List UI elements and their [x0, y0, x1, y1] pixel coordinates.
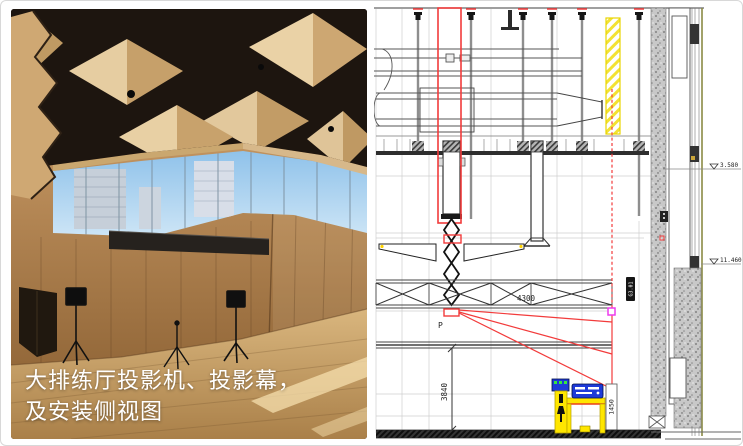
scissor-lift: [444, 219, 459, 305]
caption-line-2: 及安装侧视图: [25, 396, 355, 427]
slide-canvas: 大排练厅投影机、投影幕， 及安装侧视图: [0, 0, 743, 446]
highlight-strip: [606, 18, 620, 134]
dimension-3840: 3840: [440, 344, 456, 434]
steel-beam-section: [501, 10, 519, 30]
photo-caption: 大排练厅投影机、投影幕， 及安装侧视图: [25, 365, 355, 427]
concrete-wall-block: [674, 268, 701, 428]
cad-side-view: 4300 P 3840: [374, 6, 742, 442]
svg-text:11.460: 11.460: [720, 257, 742, 264]
rehearsal-hall-photo: 大排练厅投影机、投影幕， 及安装侧视图: [11, 9, 367, 439]
ceiling-fixture: [328, 126, 334, 132]
floor-slab: [376, 430, 661, 438]
roof-truss: [376, 280, 612, 348]
svg-text:G3.01: G3.01: [629, 281, 635, 296]
equipment-case: [19, 287, 57, 357]
control-unit: [552, 379, 569, 391]
device-on-table: [572, 384, 603, 398]
projector: [444, 309, 459, 316]
cad-illustration: 4300 P 3840: [374, 6, 742, 442]
svg-text:3840: 3840: [440, 382, 449, 401]
dim-truss-span: 4300: [517, 294, 536, 303]
dim-screen-drop: 1450: [608, 399, 616, 415]
screen-top-marker: [608, 308, 615, 315]
projector-label: P: [438, 321, 443, 330]
shaft-lower-box: [670, 358, 686, 398]
concrete-column: [649, 8, 668, 428]
secondary-housing-column: [524, 141, 550, 246]
svg-text:3.580: 3.580: [720, 162, 738, 169]
ceiling-fixture: [258, 64, 264, 70]
ductwork: [374, 49, 602, 132]
elevation-marker-lower: 11.460: [701, 257, 742, 264]
caption-line-1: 大排练厅投影机、投影幕，: [25, 365, 355, 396]
table-top: [567, 398, 605, 404]
equipment-cart: [552, 379, 605, 433]
equipment-badge: G3.01: [626, 277, 635, 301]
base-lines: [651, 432, 741, 439]
strip-badge: [660, 211, 668, 222]
ceiling-fixture: [127, 90, 135, 98]
screen-lowered: 1450: [606, 384, 617, 430]
